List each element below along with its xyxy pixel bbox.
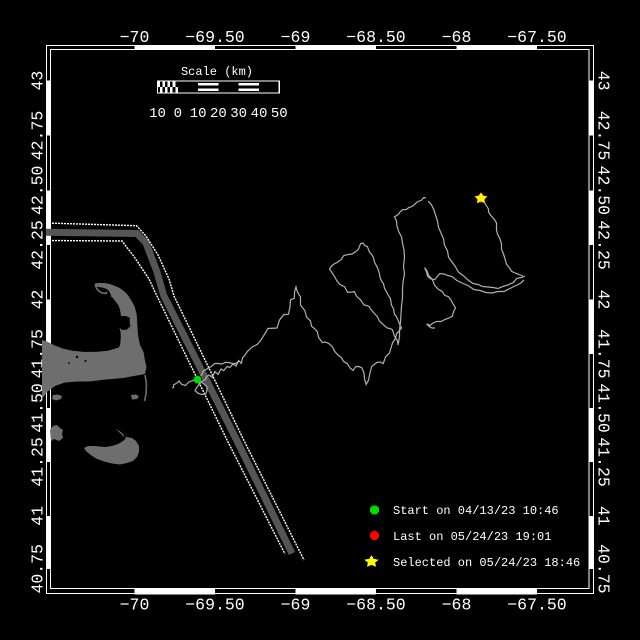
svg-text:40: 40 [251, 106, 268, 122]
svg-text:−68.50: −68.50 [346, 28, 405, 47]
svg-text:42.75: 42.75 [29, 111, 48, 161]
svg-text:43: 43 [594, 71, 613, 91]
svg-text:30: 30 [230, 106, 247, 122]
svg-text:0: 0 [174, 106, 182, 122]
svg-text:10: 10 [149, 106, 166, 122]
svg-text:43: 43 [29, 71, 48, 91]
svg-text:20: 20 [210, 106, 227, 122]
svg-text:50: 50 [271, 106, 288, 122]
svg-text:−69.50: −69.50 [185, 596, 244, 615]
svg-text:40.75: 40.75 [594, 544, 613, 594]
svg-text:10: 10 [190, 106, 207, 122]
svg-text:−67.50: −67.50 [507, 596, 566, 615]
svg-text:42.75: 42.75 [594, 111, 613, 161]
svg-text:−68.50: −68.50 [346, 596, 405, 615]
svg-text:42.25: 42.25 [29, 220, 48, 270]
svg-text:−69.50: −69.50 [185, 28, 244, 47]
svg-text:−69: −69 [281, 28, 311, 47]
svg-text:41.25: 41.25 [594, 437, 613, 487]
svg-text:42: 42 [29, 290, 48, 310]
svg-text:41: 41 [29, 506, 48, 526]
svg-text:41.50: 41.50 [594, 383, 613, 433]
svg-text:42: 42 [594, 290, 613, 310]
svg-text:−69: −69 [281, 596, 311, 615]
svg-text:Last on 05/24/23 19:01: Last on 05/24/23 19:01 [393, 530, 551, 544]
svg-text:42.25: 42.25 [594, 220, 613, 270]
svg-text:41.25: 41.25 [29, 437, 48, 487]
svg-text:−70: −70 [120, 596, 150, 615]
svg-text:−68: −68 [442, 28, 472, 47]
svg-text:−70: −70 [120, 28, 150, 47]
svg-text:42.50: 42.50 [29, 166, 48, 216]
svg-text:Selected on 05/24/23 18:46: Selected on 05/24/23 18:46 [393, 556, 580, 570]
svg-text:Scale (km): Scale (km) [181, 65, 253, 79]
svg-text:41.75: 41.75 [594, 329, 613, 379]
svg-text:40.75: 40.75 [29, 544, 48, 594]
svg-text:−68: −68 [442, 596, 472, 615]
svg-text:Start on 04/13/23 10:46: Start on 04/13/23 10:46 [393, 504, 559, 518]
svg-text:42.50: 42.50 [594, 166, 613, 216]
svg-text:41: 41 [594, 506, 613, 526]
svg-text:−67.50: −67.50 [507, 28, 566, 47]
